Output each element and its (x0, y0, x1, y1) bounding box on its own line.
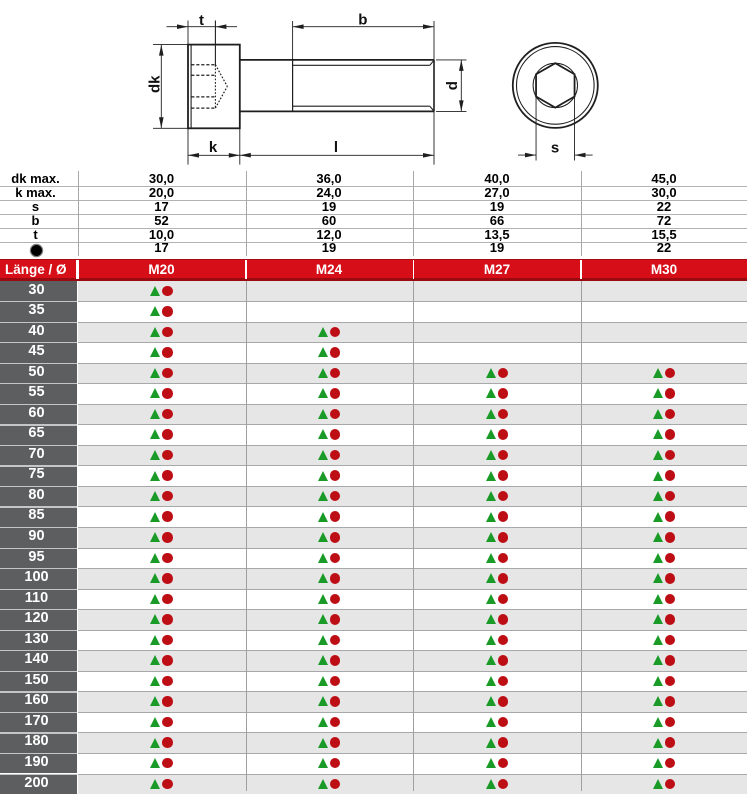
svg-text:dk: dk (146, 75, 163, 93)
svg-text:k: k (209, 139, 218, 156)
svg-text:b: b (358, 12, 367, 29)
svg-text:t: t (199, 12, 204, 29)
svg-text:s: s (551, 140, 559, 157)
svg-text:l: l (334, 139, 338, 156)
svg-text:d: d (444, 81, 461, 90)
